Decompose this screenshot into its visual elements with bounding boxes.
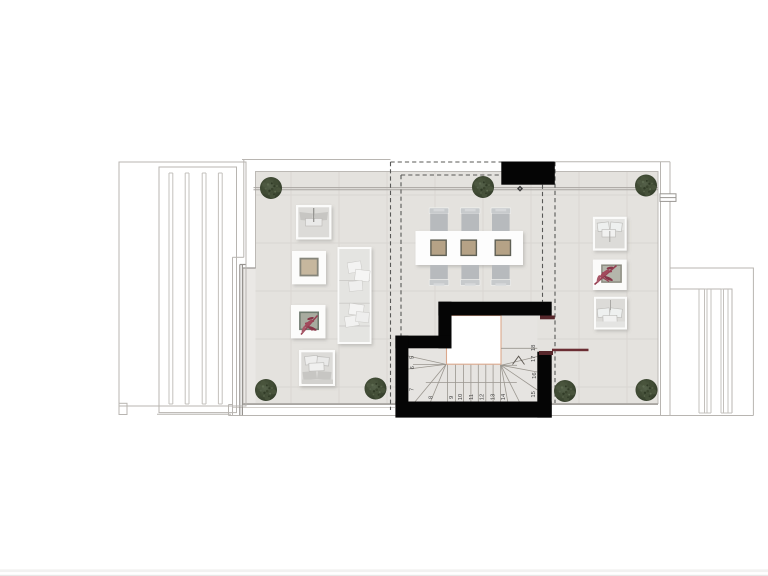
svg-text:8: 8 <box>428 396 434 399</box>
svg-text:7: 7 <box>410 388 416 391</box>
svg-text:9: 9 <box>449 396 455 399</box>
svg-text:15: 15 <box>531 391 537 397</box>
svg-text:12: 12 <box>480 394 486 400</box>
svg-text:6: 6 <box>410 366 416 369</box>
svg-text:16: 16 <box>532 372 538 378</box>
svg-text:5: 5 <box>410 356 416 359</box>
svg-text:13: 13 <box>491 394 497 400</box>
svg-text:10: 10 <box>458 394 464 400</box>
svg-text:11: 11 <box>469 394 475 400</box>
svg-text:14: 14 <box>501 393 507 400</box>
svg-text:18: 18 <box>531 345 537 351</box>
svg-text:17: 17 <box>531 356 537 362</box>
